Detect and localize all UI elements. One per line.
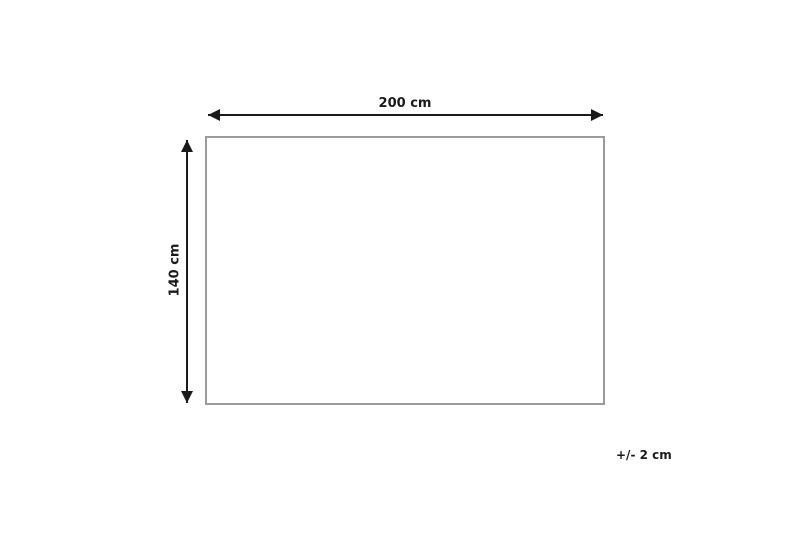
dimension-diagram: 200 cm 140 cm +/- 2 cm bbox=[0, 0, 800, 533]
height-dimension-label: 140 cm bbox=[169, 244, 182, 297]
width-dimension-label: 200 cm bbox=[205, 97, 605, 110]
tolerance-label: +/- 2 cm bbox=[616, 449, 672, 461]
product-outline-rectangle bbox=[205, 136, 605, 405]
